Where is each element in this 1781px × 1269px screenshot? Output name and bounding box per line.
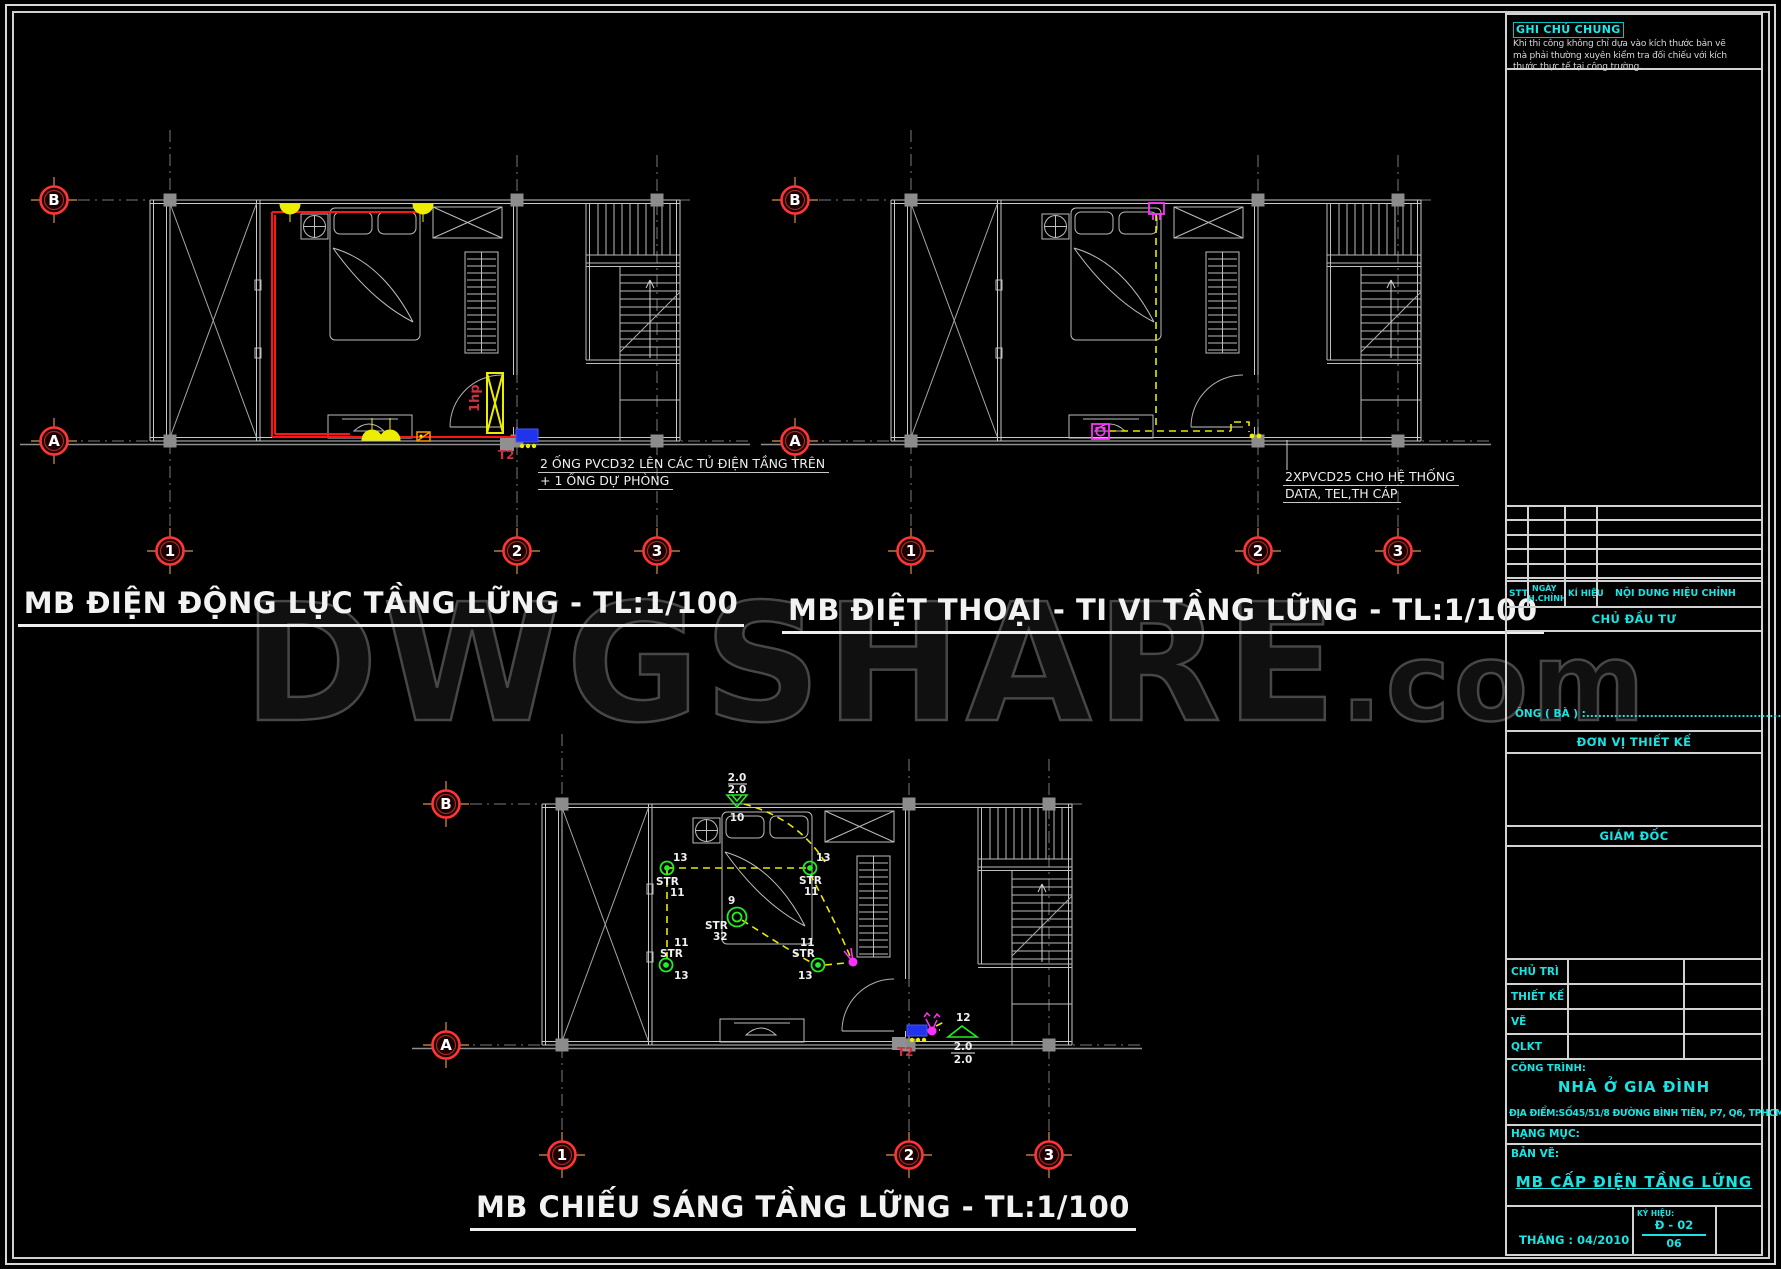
grid-label-2: 2 (512, 542, 522, 560)
giam-doc-band: GIÁM ĐỐC (1505, 825, 1763, 847)
conduit-dots-icon (520, 444, 536, 448)
cong-trinh-label: CÔNG TRÌNH: (1511, 1063, 1586, 1074)
grid-label-2: 2 (904, 1146, 914, 1164)
svg-text:13: 13 (673, 852, 688, 864)
svg-text:2.0: 2.0 (954, 1041, 973, 1053)
giam-doc-box (1505, 845, 1763, 960)
svg-text:10: 10 (730, 812, 745, 824)
empty-panel (1505, 68, 1763, 507)
grid-label-a: A (440, 1036, 452, 1054)
grid-label-2: 2 (1253, 542, 1263, 560)
grid-label-3: 3 (652, 542, 662, 560)
switch-icon (844, 948, 858, 967)
sheet-info-row: THÁNG : 04/2010 KÝ HIỆU: Đ - 02 06 (1505, 1205, 1763, 1256)
rev-header-hchinh: H.CHỈNH (1528, 594, 1567, 603)
grid-label-3: 3 (1044, 1146, 1054, 1164)
owner-label: ÔNG ( BÀ ) :............................… (1515, 708, 1781, 720)
ban-ve-label: BẢN VẼ: (1511, 1148, 1559, 1160)
svg-text:13: 13 (816, 852, 831, 864)
ky-hieu-label: KÝ HIỆU: (1637, 1209, 1674, 1218)
month-label: THÁNG : 04/2010 (1519, 1233, 1629, 1247)
svg-text:13: 13 (798, 970, 813, 982)
grid-bubble-labels: B A 1 2 3 (48, 191, 662, 560)
lighting-labels: 13 STR 11 13 STR 11 9 STR 32 11 STR 13 1… (656, 772, 972, 1066)
power-note: 2 ỐNG PVCD32 LÊN CÁC TỦ ĐIỆN TẦNG TRÊN +… (538, 456, 829, 490)
title-block: GHI CHÚ CHUNG Khi thi công không chỉ dựa… (1505, 13, 1763, 1256)
plan-title-tel-tv: MB ĐIỆT THOẠI - TI VI TẦNG LỮNG - TL:1/1… (782, 593, 1526, 634)
rev-header-stt: STT (1509, 589, 1528, 599)
don-vi-thiet-ke-band: ĐƠN VỊ THIẾT KẾ (1505, 730, 1763, 754)
vent-triangle-icon (727, 795, 747, 807)
svg-text:STR: STR (792, 948, 815, 960)
grid-label-1: 1 (557, 1146, 567, 1164)
cad-sheet: T2 1hp B A 1 2 3 (0, 0, 1781, 1269)
riser-label: T2 (897, 1045, 914, 1059)
panel-label: 1hp (468, 384, 483, 412)
svg-text:11: 11 (670, 887, 685, 899)
grid-bubble-labels: B A 1 2 3 (440, 795, 1054, 1164)
grid-label-1: 1 (165, 542, 175, 560)
riser-box-icon (516, 429, 538, 442)
grid-label-b: B (789, 191, 800, 209)
grid-label-a: A (48, 432, 60, 450)
general-note-line: mà phải thường xuyên kiểm tra đối chiếu … (1513, 51, 1755, 63)
designer-box (1505, 752, 1763, 827)
panel-1hp-icon (487, 373, 503, 433)
plan-power: T2 1hp B A 1 2 3 (20, 130, 750, 574)
svg-text:2.0: 2.0 (728, 784, 747, 796)
plan-title-lighting: MB CHIẾU SÁNG TẦNG LỮNG - TL:1/100 (470, 1190, 1132, 1231)
rev-header-kihieu: KÍ HIỆU (1568, 589, 1604, 599)
teltv-note: 2XPVCD25 CHO HỆ THỐNG DATA, TEL,TH CÁP (1283, 469, 1459, 503)
chu-dau-tu-band: CHỦ ĐẦU TƯ (1505, 606, 1763, 632)
lighting-wire-dashed (667, 804, 946, 1030)
role-row-ve: VẼ (1505, 1008, 1763, 1035)
svg-text:12: 12 (956, 1012, 971, 1024)
grid-label-a: A (789, 432, 801, 450)
grid-bubble-labels: B A 1 2 3 (789, 191, 1403, 560)
svg-text:32: 32 (713, 931, 728, 943)
general-note-line: Khi thi công không chỉ dựa vào kích thướ… (1513, 39, 1755, 51)
owner-box: ÔNG ( BÀ ) :............................… (1505, 630, 1763, 732)
general-note-title: GHI CHÚ CHUNG (1513, 22, 1624, 38)
svg-text:11: 11 (804, 886, 819, 898)
role-row-thiet-ke: THIẾT KẾ (1505, 983, 1763, 1010)
riser-label: T2 (498, 448, 515, 462)
teltv-note-line1: 2XPVCD25 CHO HỆ THỐNG (1283, 469, 1459, 486)
ban-ve-box: BẢN VẼ: MB CẤP ĐIỆN TẦNG LỮNG (1505, 1143, 1763, 1207)
project-address: ĐỊA ĐIỂM:SỐ45/51/8 ĐƯỜNG BÌNH TIÊN, P7, … (1509, 1108, 1781, 1119)
role-row-chu-tri: CHỦ TRÌ (1505, 958, 1763, 985)
sheet-number: 06 (1635, 1237, 1713, 1250)
svg-text:STR: STR (660, 948, 683, 960)
riser-box-icon (907, 1025, 927, 1036)
power-note-line2: + 1 ỐNG DỰ PHÒNG (538, 473, 673, 490)
grid-label-1: 1 (906, 542, 916, 560)
conduit-dots-icon (910, 1038, 926, 1042)
grid-label-3: 3 (1393, 542, 1403, 560)
project-name: NHÀ Ở GIA ĐÌNH (1507, 1078, 1761, 1096)
plan-title-power: MB ĐIỆN ĐỘNG LỰC TẦNG LỮNG - TL:1/100 (16, 586, 746, 627)
revision-rows (1505, 505, 1763, 582)
rev-header-ngay: NGÀY (1532, 584, 1556, 593)
svg-text:2.0: 2.0 (728, 772, 747, 784)
general-note-box: GHI CHÚ CHUNG Khi thi công không chỉ dựa… (1505, 13, 1763, 70)
role-row-qlkt: QLKT (1505, 1033, 1763, 1060)
svg-text:9: 9 (728, 895, 735, 907)
vent-triangle2-icon (948, 1026, 977, 1037)
revision-header-row: STT NGÀY H.CHỈNH KÍ HIỆU NỘI DUNG HIỆU C… (1505, 580, 1763, 608)
plan-tel-tv: B A 1 2 3 (761, 130, 1491, 574)
rev-header-noidung: NỘI DUNG HIỆU CHỈNH (1615, 588, 1736, 599)
hang-muc-band: HẠNG MỤC: (1505, 1124, 1763, 1145)
teltv-note-line2: DATA, TEL,TH CÁP (1283, 486, 1401, 503)
drawing-name: MB CẤP ĐIỆN TẦNG LỮNG (1507, 1173, 1761, 1191)
svg-text:13: 13 (674, 970, 689, 982)
grid-label-b: B (440, 795, 451, 813)
sheet-code: Đ - 02 (1635, 1218, 1713, 1232)
svg-text:2.0: 2.0 (954, 1054, 973, 1066)
cong-trinh-box: CÔNG TRÌNH: NHÀ Ở GIA ĐÌNH ĐỊA ĐIỂM:SỐ45… (1505, 1058, 1763, 1126)
plan-lighting: 13 STR 11 13 STR 11 9 STR 32 11 STR 13 1… (412, 734, 1142, 1178)
comm-wire-dashed (1109, 214, 1249, 432)
grid-label-b: B (48, 191, 59, 209)
power-note-line1: 2 ỐNG PVCD32 LÊN CÁC TỦ ĐIỆN TẦNG TRÊN (538, 456, 829, 473)
